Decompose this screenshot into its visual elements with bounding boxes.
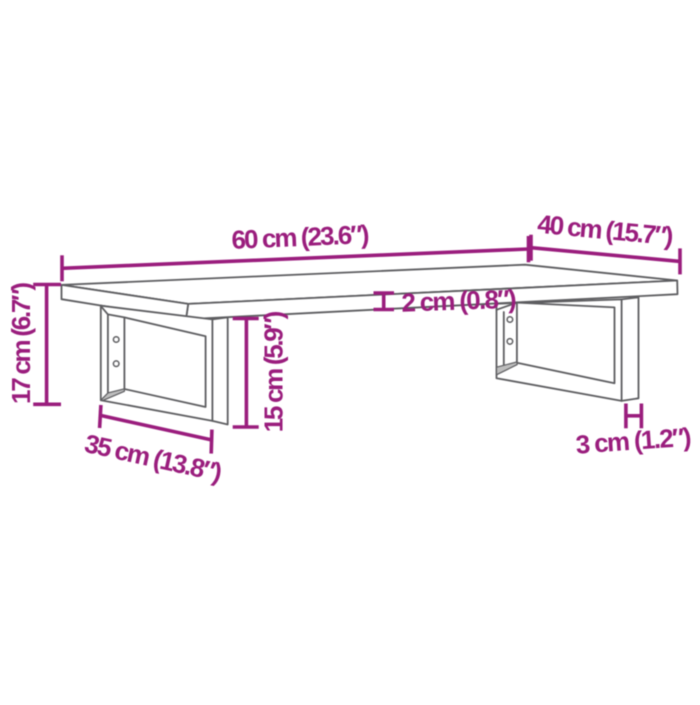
svg-text:17 cm (6.7″): 17 cm (6.7″) bbox=[6, 282, 36, 404]
svg-text:15 cm (5.9″): 15 cm (5.9″) bbox=[259, 311, 289, 433]
svg-text:2 cm (0.8″): 2 cm (0.8″) bbox=[401, 284, 517, 318]
svg-text:60 cm (23.6″): 60 cm (23.6″) bbox=[231, 219, 370, 255]
